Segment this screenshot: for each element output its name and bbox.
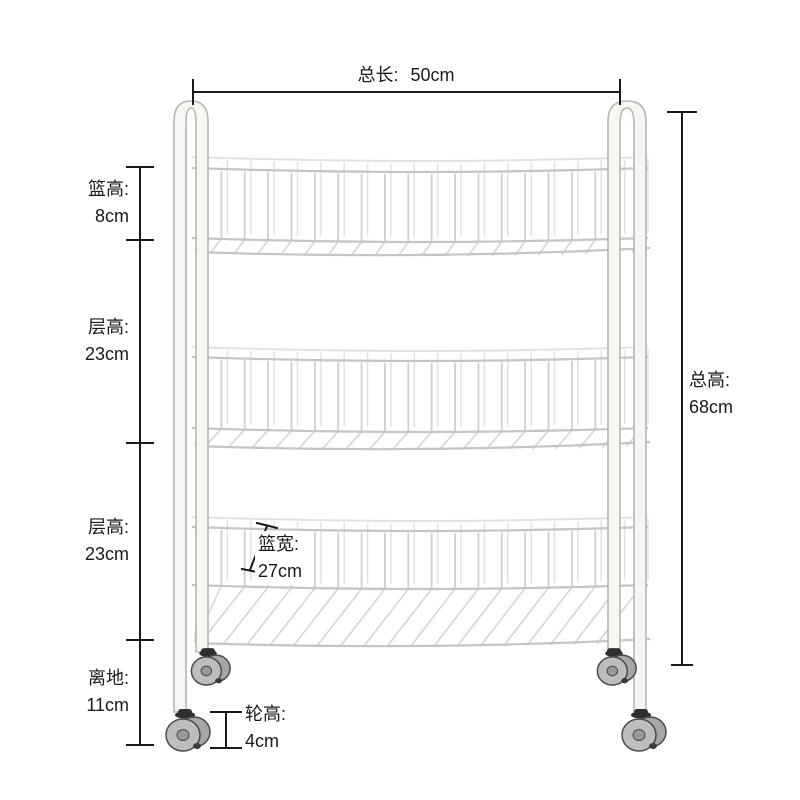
dim-line-wheel-height: [211, 712, 241, 748]
caster-wheel: [166, 709, 210, 751]
dim-tier2-height-label: 层高:: [37, 514, 129, 541]
dim-wheel-height-value: 4cm: [245, 728, 286, 755]
dim-total-length-value: 50cm: [411, 62, 455, 89]
dim-ground-clearance: 离地: 11cm: [37, 665, 129, 719]
cart-right-post: [608, 101, 646, 712]
dim-basket-depth: 篮宽: 27cm: [255, 531, 305, 585]
dim-basket-depth-label: 篮宽:: [258, 531, 302, 558]
dim-basket-height-value: 8cm: [37, 203, 129, 230]
caster-wheel: [597, 648, 636, 685]
product-dimension-diagram: 总长: 50cm 篮高: 8cm 层高: 23cm 层高: 23cm 离地: 1…: [0, 0, 800, 800]
dim-ground-clearance-label: 离地:: [37, 665, 129, 692]
basket: [192, 347, 650, 450]
dim-total-length: 总长: 50cm: [278, 62, 534, 89]
dim-basket-height: 篮高: 8cm: [37, 176, 129, 230]
dim-tier1-height: 层高: 23cm: [37, 314, 129, 368]
dim-wheel-height-label: 轮高:: [245, 701, 286, 728]
dim-tier2-height-value: 23cm: [37, 541, 129, 568]
cart-left-post: [174, 101, 208, 712]
dim-basket-height-label: 篮高:: [37, 176, 129, 203]
dim-total-height-label: 总高:: [689, 367, 799, 394]
dim-wheel-height: 轮高: 4cm: [245, 701, 286, 755]
dim-line-left-heights: [127, 167, 153, 745]
dim-total-height: 总高: 68cm: [689, 367, 799, 421]
basket: [192, 157, 650, 256]
dim-total-height-value: 68cm: [689, 394, 799, 421]
caster-wheel: [191, 648, 230, 685]
dim-total-length-label: 总长:: [357, 62, 398, 89]
cart-wheels: [166, 648, 666, 751]
dim-ground-clearance-value: 11cm: [37, 692, 129, 719]
dim-tier1-height-value: 23cm: [37, 341, 129, 368]
caster-wheel: [622, 709, 666, 751]
dim-tier2-height: 层高: 23cm: [37, 514, 129, 568]
dim-tier1-height-label: 层高:: [37, 314, 129, 341]
dim-basket-depth-value: 27cm: [258, 558, 302, 585]
